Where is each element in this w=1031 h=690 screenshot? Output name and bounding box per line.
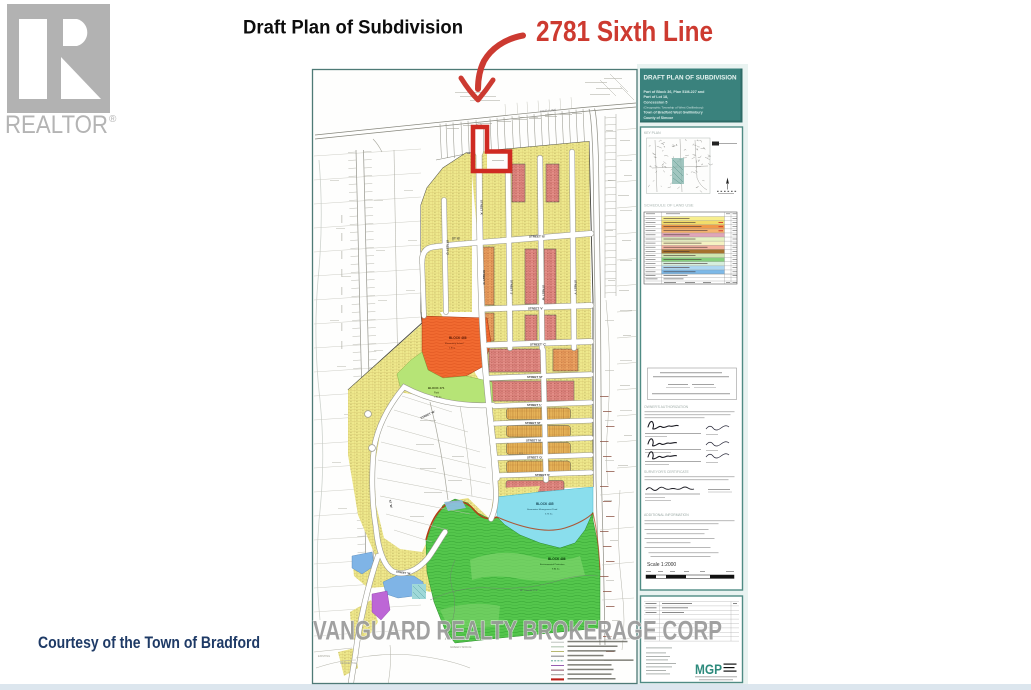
svg-text:Elementary School: Elementary School	[445, 342, 464, 345]
svg-text:VANGUARD REALTY BROKERAGE CORP: VANGUARD REALTY BROKERAGE CORP	[313, 616, 722, 646]
svg-text:STREET 'J': STREET 'J'	[510, 280, 514, 295]
svg-text:STREET 'W': STREET 'W'	[542, 285, 546, 301]
svg-text:Town of Bradford West Gwillimb: Town of Bradford West Gwillimbury	[644, 111, 703, 115]
svg-text:STREET 'D': STREET 'D'	[446, 240, 450, 255]
svg-text:GREEN SPACE: GREEN SPACE	[450, 645, 471, 649]
svg-text:(Geographic Township of West G: (Geographic Township of West Gwillimbury…	[644, 105, 704, 109]
svg-text:RESIDENTIAL: RESIDENTIAL	[340, 661, 358, 665]
svg-text:STREET 'O': STREET 'O'	[527, 456, 543, 460]
svg-text:Part of Block 36, Plan 51M-227: Part of Block 36, Plan 51M-227 and	[644, 90, 706, 94]
svg-text:MP 1 Cont 34 97 W: MP 1 Cont 34 97 W	[520, 589, 538, 592]
svg-text:KEY PLAN: KEY PLAN	[644, 131, 661, 135]
svg-text:SURVEYOR'S CERTIFICATE: SURVEYOR'S CERTIFICATE	[644, 470, 689, 474]
svg-text:REALTOR: REALTOR	[5, 111, 108, 139]
svg-text:STREET 'M': STREET 'M'	[527, 375, 543, 379]
svg-text:STREET 'A': STREET 'A'	[480, 200, 484, 215]
svg-text:STREET 'L': STREET 'L'	[527, 403, 542, 407]
svg-text:Part of Lot 18,: Part of Lot 18,	[644, 95, 669, 99]
svg-text:MGP: MGP	[695, 662, 722, 677]
svg-text:STREET 'K': STREET 'K'	[482, 270, 486, 285]
svg-text:STREET 'V': STREET 'V'	[528, 307, 543, 311]
svg-text:®: ®	[109, 114, 117, 125]
svg-text:Scale 1:2000: Scale 1:2000	[647, 562, 676, 568]
svg-text:Stormwater Management Pond: Stormwater Management Pond	[527, 508, 558, 511]
svg-text:EXISTING: EXISTING	[318, 654, 330, 658]
svg-text:1.82 ha: 1.82 ha	[434, 397, 442, 399]
svg-text:2781 Sixth Line: 2781 Sixth Line	[536, 16, 713, 48]
svg-text:Environmental Protection: Environmental Protection	[540, 563, 565, 566]
svg-text:SCHEDULE OF LAND USE: SCHEDULE OF LAND USE	[644, 203, 694, 208]
svg-text:9.84 ha: 9.84 ha	[552, 569, 560, 571]
svg-text:STREET 'M': STREET 'M'	[525, 421, 541, 425]
svg-text:County of Simcoe: County of Simcoe	[644, 116, 674, 120]
svg-text:ST 'B': ST 'B'	[452, 237, 461, 241]
svg-text:BLOCK 485: BLOCK 485	[536, 502, 554, 506]
svg-text:Concession 5: Concession 5	[644, 100, 668, 104]
svg-text:ADDITIONAL INFORMATION: ADDITIONAL INFORMATION	[644, 513, 689, 517]
svg-text:OWNER'S AUTHORIZATION: OWNER'S AUTHORIZATION	[644, 405, 689, 409]
svg-text:Courtesy of the Town of Bradfo: Courtesy of the Town of Bradford	[38, 634, 260, 652]
svg-text:Draft Plan of Subdivision: Draft Plan of Subdivision	[243, 18, 463, 39]
svg-text:STREET 'Y': STREET 'Y'	[574, 280, 578, 295]
svg-text:STREET 'N': STREET 'N'	[526, 439, 541, 443]
svg-text:DRAFT PLAN OF SUBDIVISION: DRAFT PLAN OF SUBDIVISION	[644, 75, 737, 82]
svg-text:Park: Park	[434, 392, 440, 395]
svg-text:STREET 'B': STREET 'B'	[529, 235, 546, 239]
svg-text:BLOCK 471: BLOCK 471	[428, 386, 445, 390]
svg-text:STREET 'K': STREET 'K'	[535, 473, 550, 477]
svg-text:BLOCK 486: BLOCK 486	[548, 557, 566, 561]
svg-text:STREET 'C': STREET 'C'	[530, 343, 547, 347]
svg-text:3.73 ha: 3.73 ha	[545, 514, 553, 516]
svg-text:BLOCK 466: BLOCK 466	[449, 336, 467, 340]
svg-text:1.8 ha: 1.8 ha	[449, 348, 456, 350]
